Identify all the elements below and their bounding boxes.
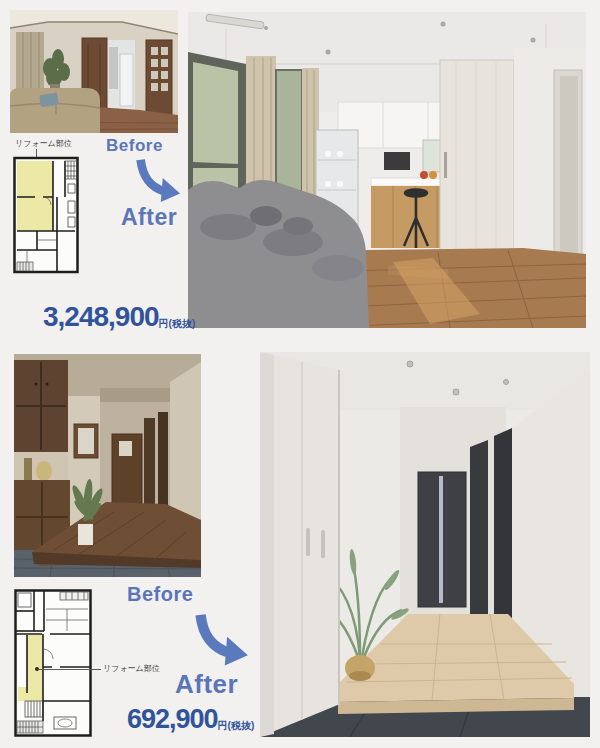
after-photo-ldk	[188, 12, 586, 328]
price-value: 692,900	[127, 706, 218, 733]
plan-area-label: リフォーム部位	[103, 665, 160, 673]
price-value: 3,248,900	[43, 303, 159, 331]
before-label: Before	[106, 137, 163, 154]
floor-plan-entrance	[14, 589, 92, 737]
price-ldk: 3,248,900 円(税抜)	[43, 303, 195, 331]
floor-plan-entrance-drawing	[14, 589, 92, 737]
after-photo-entrance	[260, 352, 590, 737]
price-unit: 円(税抜)	[218, 721, 255, 733]
floor-plan-ldk	[13, 152, 79, 276]
after-photo-entrance-render	[260, 352, 590, 737]
plan-leader-line	[38, 669, 101, 670]
before-photo-living-room	[10, 10, 178, 133]
before-photo-living-room-render	[10, 10, 178, 133]
before-after-arrow-icon	[189, 611, 249, 667]
after-photo-ldk-render	[188, 12, 586, 328]
floor-plan-ldk-drawing	[13, 152, 79, 276]
before-label: Before	[127, 584, 193, 604]
brochure-page: リフォーム部位	[0, 0, 600, 748]
after-label: After	[175, 671, 238, 697]
plan-area-label: リフォーム部位	[15, 140, 72, 148]
after-label: After	[121, 206, 177, 229]
price-unit: 円(税抜)	[159, 319, 196, 331]
price-entrance: 692,900 円(税抜)	[127, 706, 254, 733]
before-photo-hallway	[14, 354, 201, 577]
before-after-arrow-icon	[131, 156, 181, 204]
before-photo-hallway-render	[14, 354, 201, 577]
